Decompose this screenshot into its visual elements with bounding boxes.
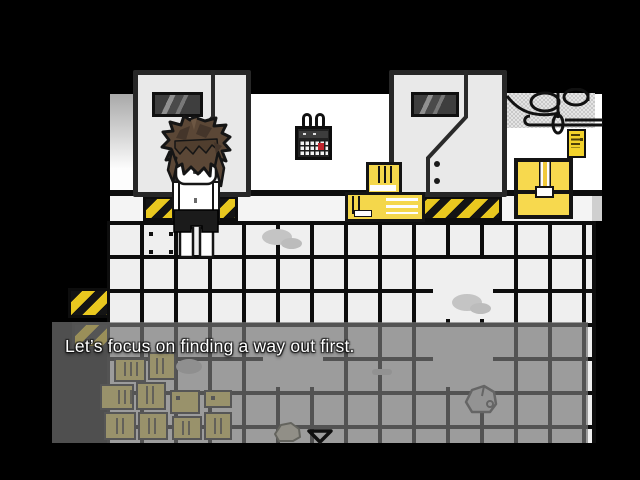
floor-hatch-screw	[149, 232, 153, 236]
player-character	[160, 114, 232, 260]
big-yellow-box[interactable]	[514, 158, 573, 219]
box-stack[interactable]	[345, 160, 427, 222]
exit-hazard-tile	[68, 288, 110, 318]
calendar-marked-day	[318, 143, 324, 150]
floor-stain	[281, 238, 302, 249]
floor-stain	[470, 303, 491, 314]
game-screen: Let’s focus on finding a way out first.	[0, 0, 640, 480]
floor-hatch-screw	[149, 250, 153, 254]
dialogue-box[interactable]: Let’s focus on finding a way out first.	[52, 322, 588, 443]
bunny-calendar[interactable]	[295, 113, 332, 160]
box-tape-tab	[535, 186, 554, 198]
dialogue-text: Let’s focus on finding a way out first.	[65, 336, 355, 357]
calendar-body	[295, 126, 332, 160]
sign-text-lines	[571, 134, 580, 148]
notice-sign[interactable]	[567, 129, 586, 158]
dialogue-continue-icon[interactable]	[305, 428, 335, 445]
wall-wires	[505, 88, 605, 140]
wall-corner-strip	[110, 94, 133, 190]
calendar-header	[299, 131, 328, 138]
